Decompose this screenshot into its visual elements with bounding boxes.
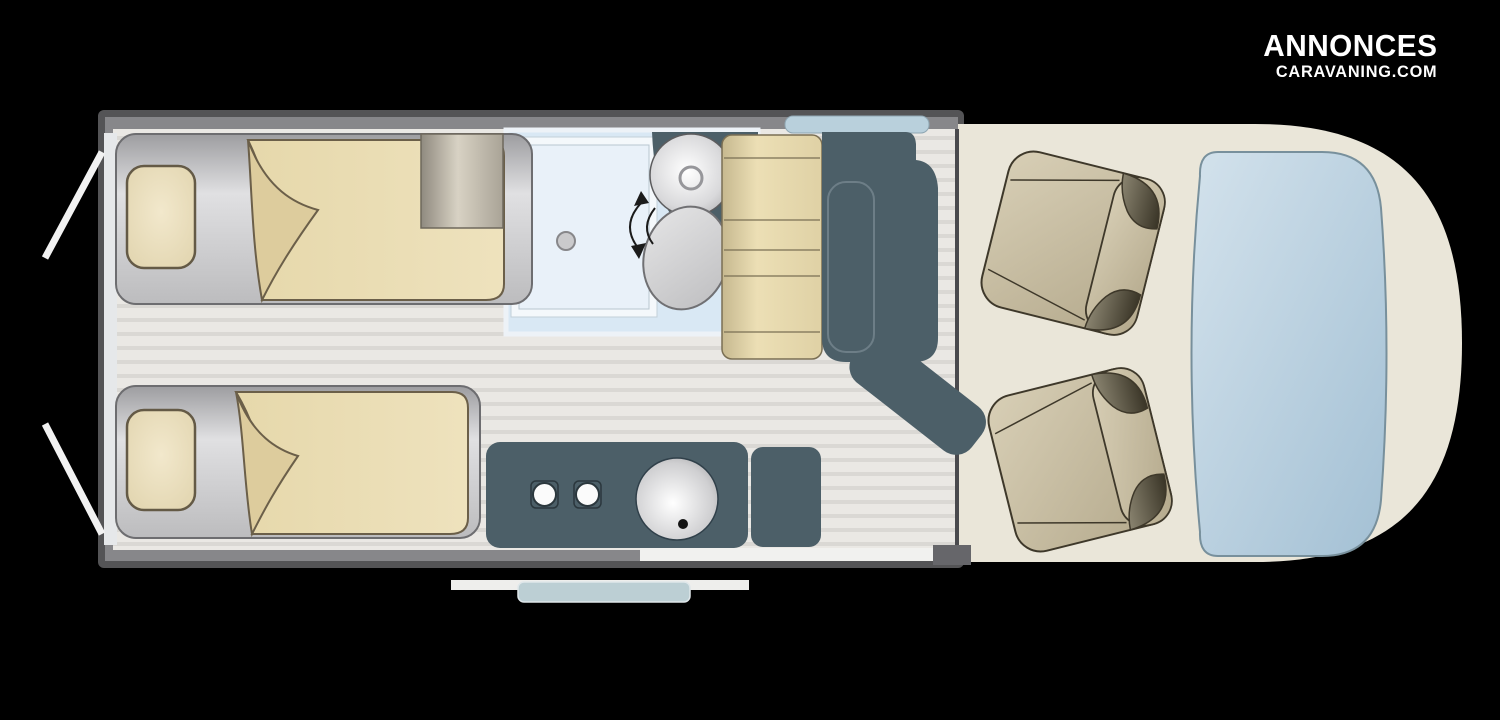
pillow bbox=[127, 166, 195, 268]
entry-step bbox=[518, 582, 690, 602]
sink-drain bbox=[678, 519, 688, 529]
cab-partition-pillar bbox=[955, 129, 959, 550]
single-bed-bottom bbox=[116, 386, 480, 538]
rear-door-right-open bbox=[45, 424, 102, 534]
pillow bbox=[127, 410, 195, 510]
brand-line1: ANNONCES bbox=[1263, 30, 1437, 61]
dashboard-windshield bbox=[1192, 152, 1387, 556]
floorplan bbox=[0, 0, 1500, 720]
screenshot-stage: ANNONCES CARAVANING.COM bbox=[0, 0, 1500, 720]
washbasin bbox=[650, 134, 732, 216]
kitchen-sink bbox=[636, 458, 718, 540]
dinette-bench bbox=[722, 135, 822, 359]
door-pillar-block bbox=[933, 545, 971, 565]
cabinet bbox=[751, 447, 821, 547]
brand-line2: CARAVANING.COM bbox=[1263, 63, 1437, 80]
entry-doorway bbox=[640, 548, 960, 561]
kitchen-counter bbox=[486, 442, 748, 548]
shower-drain bbox=[557, 232, 575, 250]
wardrobe bbox=[421, 134, 503, 228]
brand-logo: ANNONCES CARAVANING.COM bbox=[1263, 30, 1437, 80]
side-window bbox=[785, 116, 929, 133]
rear-door-left-open bbox=[45, 152, 102, 258]
